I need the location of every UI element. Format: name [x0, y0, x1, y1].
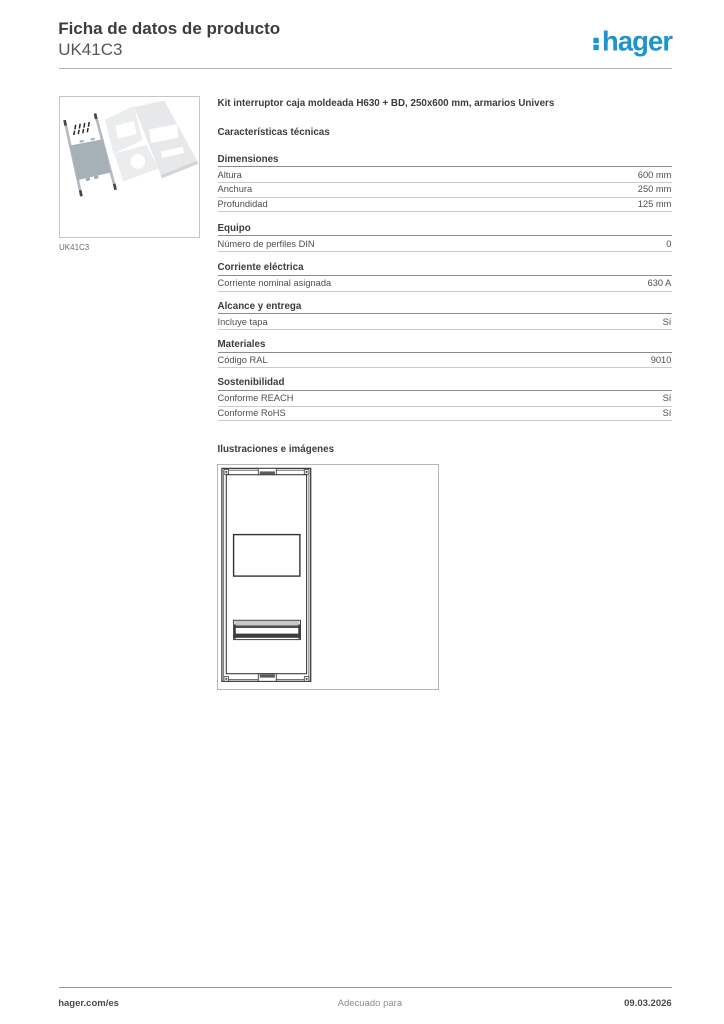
svg-text:hager: hager [602, 25, 673, 56]
